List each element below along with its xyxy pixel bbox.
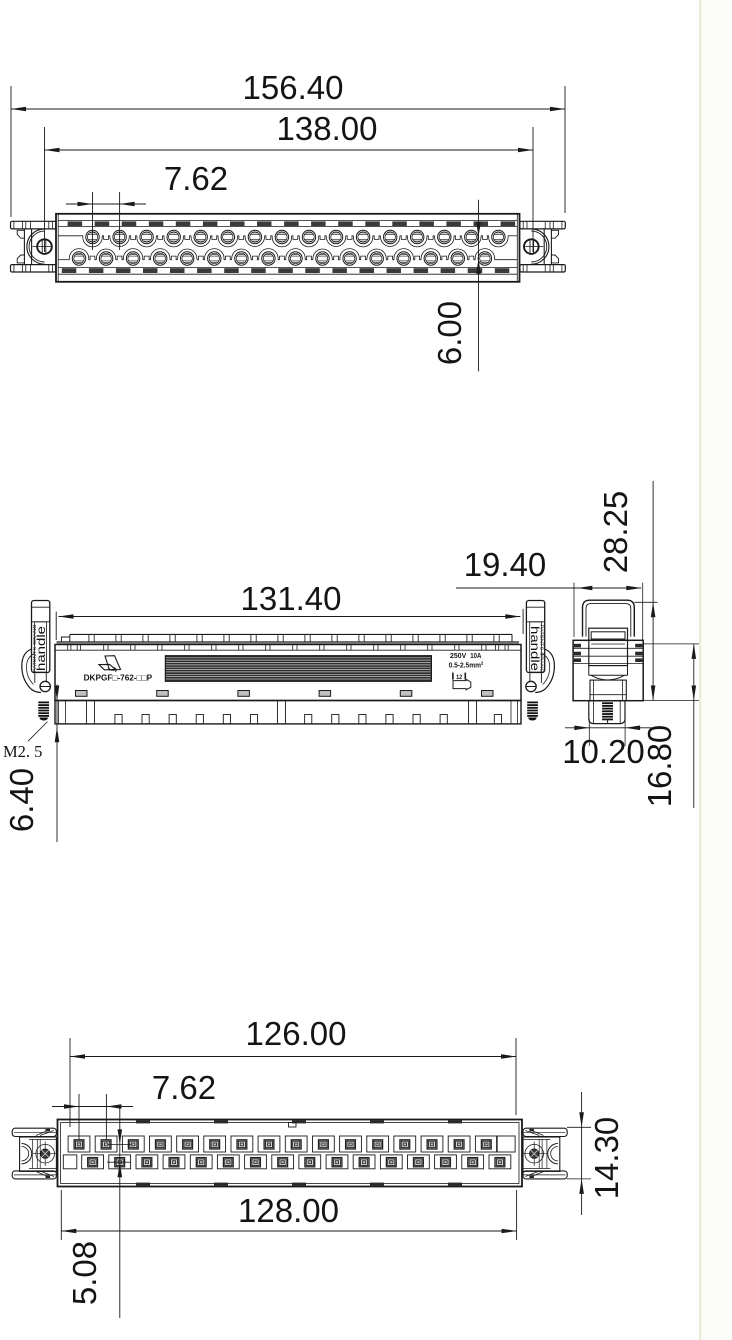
svg-text:12: 12: [456, 674, 462, 681]
svg-text:5.08: 5.08: [66, 1241, 103, 1305]
svg-text:0.5-2.5mm²: 0.5-2.5mm²: [449, 660, 484, 669]
svg-text:14.30: 14.30: [588, 1117, 625, 1200]
svg-text:131.40: 131.40: [241, 580, 342, 617]
svg-text:M2. 5: M2. 5: [3, 742, 42, 761]
svg-text:126.00: 126.00: [246, 1015, 347, 1052]
svg-text:PATENTS-BRAND: PATENTS-BRAND: [32, 625, 37, 673]
svg-text:6.40: 6.40: [3, 768, 40, 832]
svg-text:138.00: 138.00: [277, 110, 378, 147]
svg-text:128.00: 128.00: [238, 1192, 339, 1229]
svg-text:156.40: 156.40: [243, 69, 344, 106]
svg-text:6.00: 6.00: [431, 301, 468, 365]
svg-text:250V: 250V: [450, 651, 467, 660]
svg-text:10A: 10A: [470, 651, 482, 660]
svg-text:DKPGF□-762-□□P: DKPGF□-762-□□P: [84, 672, 153, 682]
svg-text:7.62: 7.62: [152, 1069, 216, 1106]
svg-text:16.80: 16.80: [641, 725, 678, 808]
svg-text:10.20: 10.20: [562, 733, 645, 770]
svg-text:PATENTS-BRAND: PATENTS-BRAND: [539, 625, 544, 673]
svg-text:7.62: 7.62: [164, 160, 228, 197]
svg-text:19.40: 19.40: [464, 546, 547, 583]
svg-text:28.25: 28.25: [597, 491, 634, 574]
